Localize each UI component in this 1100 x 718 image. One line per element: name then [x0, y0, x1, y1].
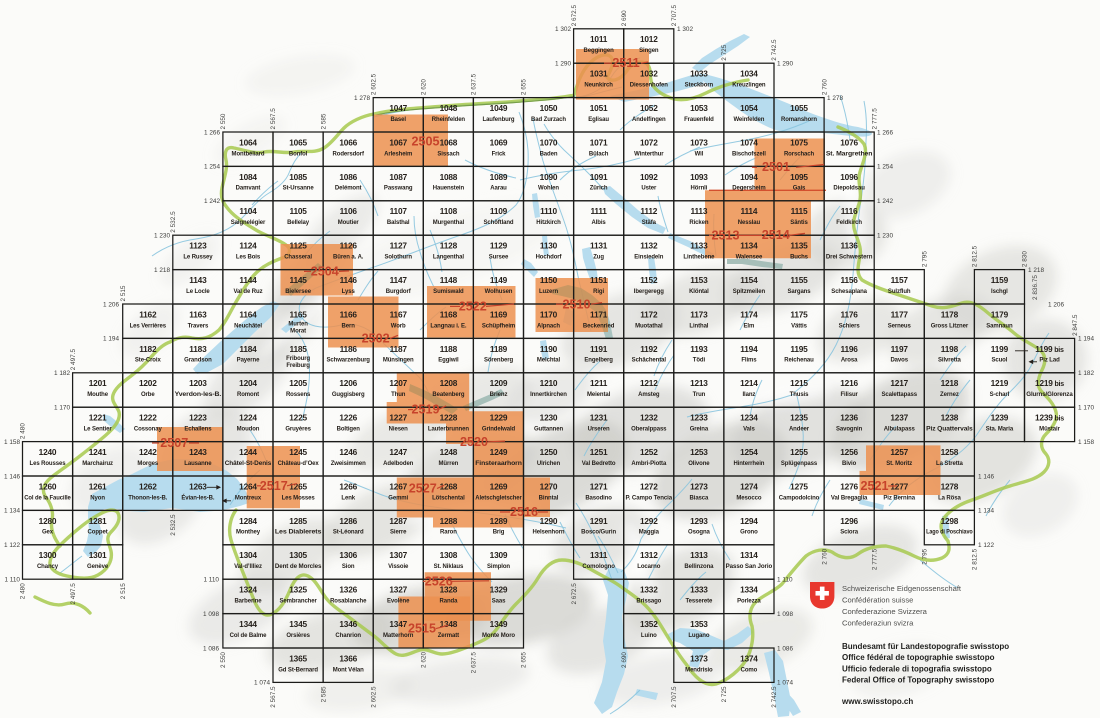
svg-text:Sta. Maria: Sta. Maria [986, 427, 1014, 433]
svg-text:Eggiwil: Eggiwil [438, 358, 459, 364]
svg-text:2 480: 2 480 [20, 423, 27, 439]
svg-text:2527: 2527 [409, 482, 437, 496]
svg-text:Greina: Greina [690, 427, 709, 433]
svg-text:Zug: Zug [593, 255, 604, 261]
svg-text:1111: 1111 [590, 206, 607, 216]
svg-text:Scuol: Scuol [991, 358, 1007, 364]
svg-text:Sursee: Sursee [489, 255, 509, 261]
svg-text:2 760: 2 760 [821, 79, 828, 95]
svg-text:2 567.5: 2 567.5 [270, 686, 277, 708]
svg-text:Basodino: Basodino [585, 495, 612, 501]
svg-text:1214: 1214 [740, 378, 758, 388]
svg-text:St. Margrethen: St. Margrethen [826, 151, 873, 157]
svg-text:Ricken: Ricken [689, 220, 709, 226]
svg-text:Reichenau: Reichenau [784, 358, 814, 364]
svg-text:Brienz: Brienz [490, 392, 508, 398]
svg-text:Val Bedretto: Val Bedretto [582, 461, 616, 467]
svg-text:2510: 2510 [562, 297, 590, 311]
svg-text:2 777.5: 2 777.5 [871, 548, 878, 570]
svg-text:Lenk: Lenk [341, 495, 355, 501]
svg-text:Hinterrhein: Hinterrhein [733, 461, 764, 467]
svg-text:1069: 1069 [490, 137, 508, 147]
svg-text:2516: 2516 [510, 505, 538, 519]
svg-text:Echallens: Echallens [184, 427, 212, 433]
svg-text:Lugano: Lugano [688, 633, 709, 639]
svg-text:S-charl: S-charl [990, 392, 1010, 398]
svg-text:2 707.5: 2 707.5 [671, 686, 678, 708]
svg-text:Piz Lad: Piz Lad [1039, 358, 1060, 364]
svg-text:Ambri-Piotta: Ambri-Piotta [631, 461, 667, 467]
svg-text:Schöftland: Schöftland [484, 220, 514, 226]
svg-text:Bischofszell: Bischofszell [732, 151, 766, 157]
svg-text:1332: 1332 [640, 585, 658, 595]
svg-text:1162: 1162 [139, 309, 157, 319]
svg-text:1255: 1255 [790, 447, 808, 457]
svg-text:Bosco/Gurin: Bosco/Gurin [581, 530, 616, 536]
svg-text:Confederazione Svizzera: Confederazione Svizzera [842, 607, 928, 616]
svg-text:Gais: Gais [793, 186, 806, 192]
svg-text:1113: 1113 [691, 206, 708, 216]
svg-text:1244: 1244 [239, 447, 257, 457]
svg-text:1112: 1112 [640, 206, 657, 216]
svg-text:Sierre: Sierre [390, 530, 407, 536]
svg-text:Montreux: Montreux [235, 495, 262, 501]
svg-text:Le Russey: Le Russey [183, 255, 213, 261]
svg-text:Büren a. A.: Büren a. A. [333, 255, 364, 261]
svg-text:2520: 2520 [460, 435, 488, 449]
svg-text:Schiers: Schiers [839, 323, 861, 329]
svg-text:1 170: 1 170 [1078, 405, 1094, 412]
svg-text:Schächental: Schächental [632, 358, 667, 364]
svg-text:Confédération suisse: Confédération suisse [842, 596, 913, 605]
svg-text:Bonfol: Bonfol [289, 151, 308, 157]
svg-text:Steckborn: Steckborn [685, 83, 714, 89]
svg-text:1345: 1345 [289, 619, 307, 629]
svg-text:1 290: 1 290 [555, 61, 571, 68]
svg-text:1265: 1265 [289, 481, 307, 491]
svg-text:2 812.5: 2 812.5 [972, 245, 979, 267]
svg-text:Balsthal: Balsthal [387, 220, 410, 226]
svg-text:Diessenhofen: Diessenhofen [630, 83, 669, 89]
svg-text:1210: 1210 [540, 378, 558, 388]
svg-text:1073: 1073 [690, 137, 708, 147]
svg-text:1272: 1272 [640, 481, 658, 491]
svg-text:1093: 1093 [690, 172, 708, 182]
svg-text:1309: 1309 [490, 550, 508, 560]
svg-text:Thusis: Thusis [790, 392, 809, 398]
svg-text:1292: 1292 [640, 516, 658, 526]
svg-text:1 218: 1 218 [154, 267, 170, 274]
svg-text:1286: 1286 [339, 516, 357, 526]
svg-text:Como: Como [741, 667, 758, 673]
svg-text:Arlesheim: Arlesheim [384, 151, 412, 157]
svg-text:1294: 1294 [740, 516, 758, 526]
svg-text:1271: 1271 [590, 481, 608, 491]
svg-text:Muotathal: Muotathal [635, 323, 663, 329]
svg-text:1311: 1311 [590, 550, 608, 560]
svg-text:1196: 1196 [840, 344, 858, 354]
svg-text:Mont Vélan: Mont Vélan [333, 667, 364, 673]
svg-text:Payerne: Payerne [237, 358, 260, 364]
svg-text:Murten: Murten [288, 322, 308, 328]
svg-text:Innertkirchen: Innertkirchen [530, 392, 567, 398]
svg-text:Sörenberg: Sörenberg [484, 358, 514, 364]
svg-text:1146: 1146 [340, 275, 358, 285]
svg-text:2 637.5: 2 637.5 [471, 73, 478, 95]
svg-text:1352: 1352 [640, 619, 658, 629]
svg-text:Passwang: Passwang [384, 186, 413, 192]
svg-text:1152: 1152 [640, 275, 658, 285]
svg-text:Adelboden: Adelboden [383, 461, 414, 467]
svg-text:Ibergeregg: Ibergeregg [634, 289, 664, 295]
svg-text:Châtel-St-Denis: Châtel-St-Denis [225, 461, 272, 467]
svg-text:Les Rousses: Les Rousses [30, 461, 67, 467]
svg-text:Vissoie: Vissoie [388, 564, 409, 570]
svg-text:1157: 1157 [891, 275, 909, 285]
svg-text:1256: 1256 [840, 447, 858, 457]
svg-text:Neunkirch: Neunkirch [584, 83, 613, 89]
svg-text:Beckenried: Beckenried [583, 323, 615, 329]
svg-text:2502: 2502 [362, 332, 390, 346]
svg-text:Bundesamt für Landestopografie: Bundesamt für Landestopografie swisstopo [842, 642, 1009, 651]
svg-text:1173: 1173 [690, 309, 708, 319]
svg-text:Zürich: Zürich [590, 186, 608, 192]
svg-text:1090: 1090 [540, 172, 558, 182]
svg-text:1109: 1109 [490, 206, 508, 216]
svg-text:Flims: Flims [741, 358, 757, 364]
svg-text:1276: 1276 [840, 481, 858, 491]
svg-text:Gruyères: Gruyères [285, 427, 311, 433]
svg-text:1048: 1048 [440, 103, 458, 113]
svg-text:1211: 1211 [590, 378, 608, 388]
svg-text:Mouthe: Mouthe [87, 392, 108, 398]
svg-text:1154: 1154 [740, 275, 758, 285]
svg-text:2505: 2505 [411, 135, 439, 149]
svg-text:1136: 1136 [840, 241, 858, 251]
svg-text:1232: 1232 [640, 413, 658, 423]
svg-text:1051: 1051 [590, 103, 608, 113]
svg-text:Bivio: Bivio [842, 461, 857, 467]
svg-text:1096: 1096 [840, 172, 858, 182]
svg-text:1049: 1049 [490, 103, 508, 113]
svg-text:Evolène: Evolène [387, 599, 410, 605]
svg-text:Rodersdorf: Rodersdorf [333, 151, 365, 157]
svg-text:Zernez: Zernez [940, 392, 959, 398]
svg-text:1159: 1159 [991, 275, 1009, 285]
svg-text:1307: 1307 [389, 550, 407, 560]
svg-text:1 134: 1 134 [4, 508, 20, 515]
svg-text:1148: 1148 [440, 275, 458, 285]
svg-text:1222: 1222 [139, 413, 157, 423]
svg-text:2 655: 2 655 [521, 652, 528, 668]
svg-text:Évian-les-B.: Évian-les-B. [181, 493, 215, 501]
svg-text:1333: 1333 [690, 585, 708, 595]
svg-text:St. Moritz: St. Moritz [886, 461, 912, 467]
svg-text:1145: 1145 [289, 275, 307, 285]
svg-text:1 230: 1 230 [877, 233, 893, 240]
svg-text:2 777.5: 2 777.5 [871, 108, 878, 130]
svg-text:Binntal: Binntal [539, 495, 559, 501]
svg-text:1217: 1217 [890, 378, 908, 388]
svg-text:1201: 1201 [89, 378, 107, 388]
svg-text:1212: 1212 [640, 378, 658, 388]
svg-text:1125: 1125 [289, 241, 307, 251]
svg-text:2 725: 2 725 [721, 44, 728, 60]
svg-text:Raron: Raron [440, 530, 457, 536]
svg-text:1070: 1070 [540, 137, 558, 147]
svg-text:1329: 1329 [490, 585, 508, 595]
svg-text:1 146: 1 146 [4, 473, 20, 480]
svg-text:Luino: Luino [641, 633, 657, 639]
svg-text:2507: 2507 [160, 436, 188, 450]
svg-text:1215: 1215 [790, 378, 808, 388]
svg-text:2 830: 2 830 [1022, 251, 1029, 267]
svg-text:1325: 1325 [289, 585, 307, 595]
svg-text:1233: 1233 [690, 413, 708, 423]
svg-text:1257: 1257 [890, 447, 908, 457]
svg-text:Worb: Worb [391, 323, 406, 329]
svg-text:1226: 1226 [339, 413, 357, 423]
svg-text:Mesocco: Mesocco [736, 495, 761, 501]
svg-text:1207: 1207 [389, 378, 407, 388]
svg-text:2 672.5: 2 672.5 [571, 5, 578, 27]
svg-text:1 242: 1 242 [877, 198, 893, 205]
svg-text:Fribourg: Fribourg [286, 356, 310, 362]
svg-text:Ufficio federale di topografia: Ufficio federale di topografia swisstopo [842, 664, 992, 673]
svg-text:1273: 1273 [690, 481, 708, 491]
svg-text:Le Locle: Le Locle [186, 289, 210, 295]
svg-text:1287: 1287 [389, 516, 407, 526]
svg-text:1243: 1243 [189, 447, 207, 457]
svg-text:Rossens: Rossens [286, 392, 311, 398]
svg-text:1183: 1183 [189, 344, 207, 354]
svg-text:Mendrisio: Mendrisio [685, 667, 713, 673]
svg-text:Confederaziun svizra: Confederaziun svizra [842, 619, 914, 628]
svg-text:1231: 1231 [590, 413, 608, 423]
svg-text:Albis: Albis [592, 220, 607, 226]
svg-text:2 480: 2 480 [20, 583, 27, 599]
svg-text:Beggingen: Beggingen [584, 48, 615, 54]
svg-text:1095: 1095 [790, 172, 808, 182]
svg-text:1170: 1170 [540, 309, 558, 319]
svg-text:1 110: 1 110 [777, 577, 793, 584]
svg-text:Chanrion: Chanrion [335, 633, 361, 639]
svg-text:1236: 1236 [840, 413, 858, 423]
svg-text:Laufenburg: Laufenburg [483, 117, 515, 123]
svg-text:1052: 1052 [640, 103, 658, 113]
svg-text:1202: 1202 [139, 378, 157, 388]
svg-text:1298: 1298 [941, 516, 959, 526]
svg-text:Les Verrières: Les Verrières [130, 323, 167, 329]
svg-text:1071: 1071 [590, 137, 608, 147]
svg-text:1 194: 1 194 [103, 336, 119, 343]
svg-text:Piz Quattervals: Piz Quattervals [926, 427, 973, 433]
svg-text:1108: 1108 [440, 206, 458, 216]
svg-text:Kreuzlingen: Kreuzlingen [732, 83, 766, 89]
svg-text:Morat: Morat [290, 329, 306, 335]
svg-text:Rorschach: Rorschach [784, 151, 815, 157]
svg-text:1224: 1224 [239, 413, 257, 423]
svg-text:1168: 1168 [440, 309, 458, 319]
svg-text:1068: 1068 [440, 137, 458, 147]
svg-text:1258: 1258 [941, 447, 959, 457]
svg-text:1278: 1278 [941, 481, 959, 491]
svg-text:Schweizerische Eidgenossenscha: Schweizerische Eidgenossenschaft [842, 584, 962, 593]
svg-text:Scalettapass: Scalettapass [881, 392, 917, 398]
svg-text:Splügenpass: Splügenpass [781, 461, 818, 467]
svg-text:2521: 2521 [860, 479, 888, 493]
svg-text:Andeer: Andeer [789, 427, 810, 433]
svg-text:Val de Ruz: Val de Ruz [233, 289, 262, 295]
svg-text:1124: 1124 [239, 241, 257, 251]
svg-text:2 690: 2 690 [621, 10, 628, 26]
svg-text:1188: 1188 [440, 344, 458, 354]
svg-text:1198: 1198 [941, 344, 959, 354]
svg-text:2 497.5: 2 497.5 [70, 583, 77, 605]
svg-text:1147: 1147 [390, 275, 408, 285]
svg-text:Maggia: Maggia [639, 530, 660, 536]
svg-text:1 086: 1 086 [777, 645, 793, 652]
svg-text:Guggisberg: Guggisberg [332, 392, 365, 398]
svg-text:2 515: 2 515 [120, 285, 127, 301]
svg-text:Château-d’Oex: Château-d’Oex [278, 461, 320, 467]
svg-text:Klöntal: Klöntal [689, 289, 709, 295]
svg-text:1151: 1151 [590, 275, 608, 285]
svg-text:1344: 1344 [239, 619, 257, 629]
svg-text:1 146: 1 146 [978, 473, 994, 480]
svg-text:1163: 1163 [189, 309, 207, 319]
svg-text:Frick: Frick [492, 151, 507, 157]
svg-text:Wohlen: Wohlen [538, 186, 559, 192]
svg-text:Morges: Morges [137, 461, 159, 467]
svg-text:1169: 1169 [490, 309, 508, 319]
svg-text:Yverdon-les-B.: Yverdon-les-B. [175, 392, 222, 398]
svg-text:Chancy: Chancy [37, 564, 59, 570]
svg-text:1116: 1116 [841, 206, 858, 216]
svg-text:Campodolcino: Campodolcino [779, 495, 820, 501]
svg-text:Val Bregaglia: Val Bregaglia [831, 495, 868, 501]
svg-text:2 532.5: 2 532.5 [170, 514, 177, 536]
svg-text:1175: 1175 [790, 309, 808, 319]
svg-text:1166: 1166 [340, 309, 358, 319]
svg-text:1326: 1326 [339, 585, 357, 595]
svg-text:Sumiswald: Sumiswald [433, 289, 464, 295]
svg-text:2514: 2514 [762, 228, 790, 242]
svg-text:1130: 1130 [540, 241, 558, 251]
svg-text:1 182: 1 182 [54, 370, 70, 377]
svg-text:1034: 1034 [740, 69, 758, 79]
svg-text:Rheinfelden: Rheinfelden [432, 117, 466, 123]
svg-text:1 302: 1 302 [555, 26, 571, 33]
svg-text:Säntis: Säntis [790, 220, 808, 226]
svg-text:2 532.5: 2 532.5 [170, 211, 177, 233]
svg-text:Locarno: Locarno [637, 564, 660, 570]
svg-text:1123: 1123 [189, 241, 207, 251]
svg-text:Lyss: Lyss [342, 289, 356, 295]
svg-text:Einsiedeln: Einsiedeln [634, 255, 663, 261]
svg-text:1105: 1105 [289, 206, 307, 216]
svg-text:Chasseral: Chasseral [284, 255, 312, 261]
svg-text:Linthebene: Linthebene [683, 255, 715, 261]
svg-text:1246: 1246 [339, 447, 357, 457]
svg-text:La Rösa: La Rösa [938, 495, 961, 501]
svg-text:1285: 1285 [289, 516, 307, 526]
svg-text:1373: 1373 [690, 653, 708, 663]
svg-text:Orsières: Orsières [286, 633, 310, 639]
svg-text:1067: 1067 [389, 137, 407, 147]
svg-text:1305: 1305 [289, 550, 307, 560]
svg-text:1203: 1203 [189, 378, 207, 388]
svg-text:Vals: Vals [743, 427, 755, 433]
svg-text:1296: 1296 [840, 516, 858, 526]
svg-text:2 550: 2 550 [220, 113, 227, 129]
svg-text:1 122: 1 122 [978, 542, 994, 549]
svg-text:2 637.5: 2 637.5 [471, 652, 478, 674]
svg-text:Brissago: Brissago [636, 599, 661, 605]
svg-text:2 742.5: 2 742.5 [771, 39, 778, 61]
svg-text:1324: 1324 [239, 585, 257, 595]
svg-text:2 707.5: 2 707.5 [671, 5, 678, 27]
svg-text:2 567.5: 2 567.5 [270, 108, 277, 130]
svg-text:2 847.5: 2 847.5 [1072, 314, 1079, 336]
svg-text:Guttannen: Guttannen [534, 427, 564, 433]
svg-text:1178: 1178 [941, 309, 959, 319]
svg-text:Dent de Morcles: Dent de Morcles [275, 564, 322, 570]
svg-text:1149: 1149 [490, 275, 508, 285]
svg-text:Drei Schwestern: Drei Schwestern [826, 255, 873, 261]
svg-text:2526: 2526 [425, 574, 453, 588]
svg-text:Lauterbrunnen: Lauterbrunnen [428, 427, 469, 433]
svg-text:1089: 1089 [490, 172, 508, 182]
svg-text:Silvretta: Silvretta [938, 358, 962, 364]
svg-text:Niesen: Niesen [389, 427, 409, 433]
svg-text:2 795: 2 795 [922, 251, 929, 267]
svg-text:1 074: 1 074 [254, 680, 270, 687]
svg-text:Neuchâtel: Neuchâtel [234, 323, 262, 329]
svg-text:Filisur: Filisur [840, 392, 858, 398]
svg-text:1 122: 1 122 [4, 542, 20, 549]
svg-text:Montbéliard: Montbéliard [232, 151, 265, 157]
svg-text:1054: 1054 [740, 103, 758, 113]
svg-text:Travers: Travers [188, 323, 209, 329]
svg-text:Biasca: Biasca [690, 495, 710, 501]
svg-text:1114: 1114 [741, 206, 758, 216]
svg-text:1143: 1143 [189, 275, 207, 285]
svg-text:Helsenhorn: Helsenhorn [532, 530, 564, 536]
svg-text:1197: 1197 [891, 344, 909, 354]
svg-text:2513: 2513 [711, 229, 739, 243]
svg-text:1127: 1127 [390, 241, 408, 251]
svg-text:2 690: 2 690 [621, 652, 628, 668]
svg-text:2 836.75: 2 836.75 [1032, 275, 1039, 300]
svg-text:Hörnli: Hörnli [691, 186, 708, 192]
svg-text:Rigi: Rigi [593, 289, 604, 295]
svg-text:2 760: 2 760 [821, 548, 828, 564]
svg-text:Genève: Genève [87, 564, 109, 570]
svg-text:Gex: Gex [42, 530, 54, 536]
svg-text:1115: 1115 [791, 206, 808, 216]
svg-text:1230: 1230 [540, 413, 558, 423]
svg-text:1281: 1281 [89, 516, 107, 526]
svg-text:Mürren: Mürren [439, 461, 459, 467]
svg-text:Col de Balme: Col de Balme [230, 633, 268, 639]
svg-text:Ischgl: Ischgl [991, 289, 1008, 295]
svg-text:1347: 1347 [389, 619, 407, 629]
svg-text:Feldkirch: Feldkirch [836, 220, 862, 226]
svg-text:1223: 1223 [189, 413, 207, 423]
svg-text:Zweisimmen: Zweisimmen [331, 461, 366, 467]
svg-text:1241: 1241 [89, 447, 107, 457]
